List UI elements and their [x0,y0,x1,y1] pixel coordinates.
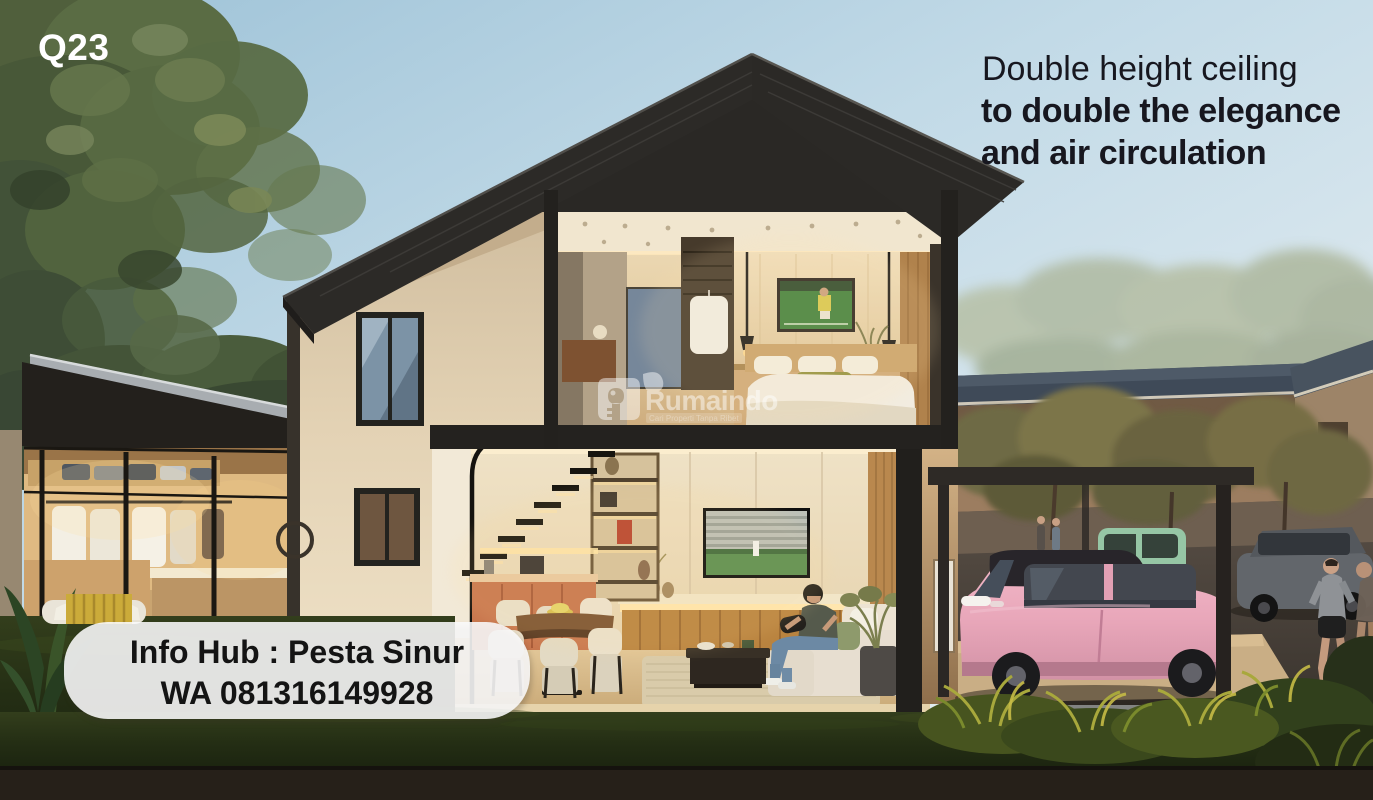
svg-text:Q23: Q23 [38,27,109,68]
svg-text:Rumaindo: Rumaindo [645,385,778,416]
svg-text:Cari Properti Tanpa Ribet: Cari Properti Tanpa Ribet [649,414,739,423]
svg-text:WA 081316149928: WA 081316149928 [161,675,434,711]
svg-text:to double the elegance: to double the elegance [981,92,1341,130]
svg-text:Double height ceiling: Double height ceiling [982,50,1298,88]
svg-text:and air circulation: and air circulation [981,134,1266,172]
svg-text:Info Hub : Pesta Sinur: Info Hub : Pesta Sinur [130,634,464,670]
